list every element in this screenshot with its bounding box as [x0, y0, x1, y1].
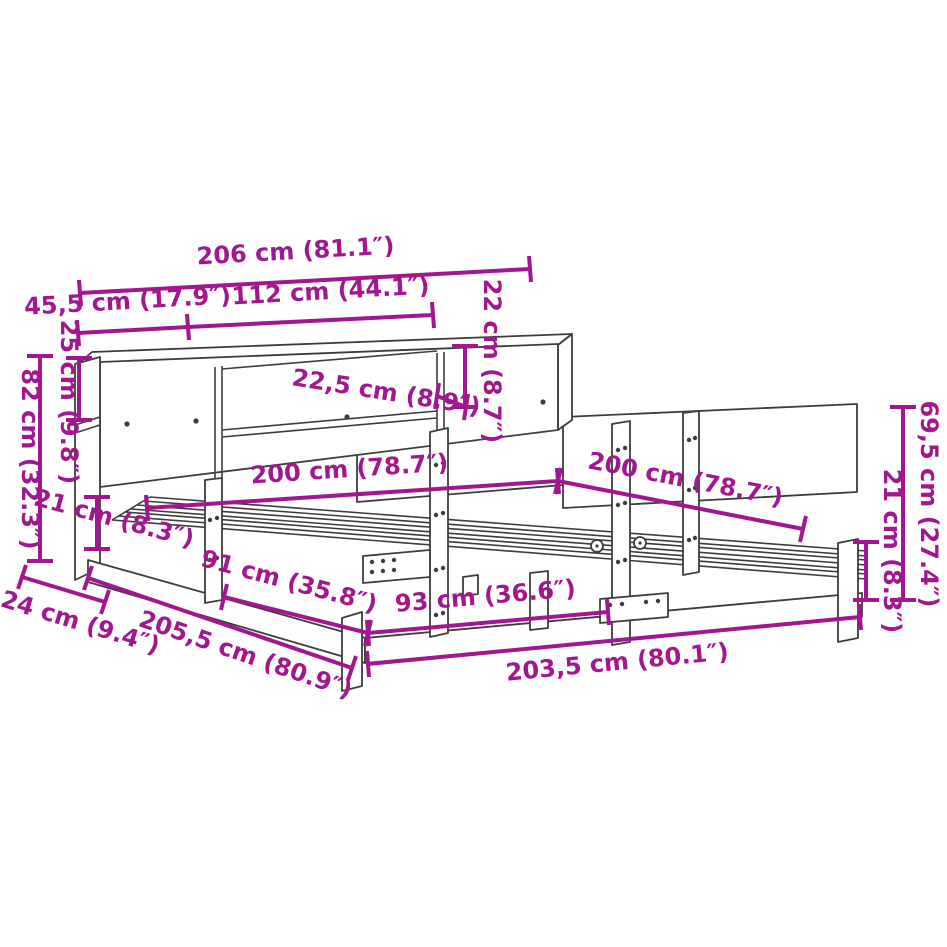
dimension-line — [188, 315, 433, 327]
rail-knob-center — [595, 544, 598, 547]
rail-bracket-left — [363, 550, 430, 583]
dimension-label: 21 cm (8.3″) — [31, 483, 197, 553]
dimension-left-frame-height: 21 cm (8.3″) — [31, 483, 197, 553]
dimension-label: 93 cm (36.6″) — [394, 574, 577, 618]
shelf-pin-hole — [344, 414, 349, 419]
dimension-label: 69,5 cm (27.4″) — [915, 400, 943, 607]
dimension-label: 25 cm (9.8″) — [55, 320, 83, 485]
shelf-pin-hole — [124, 421, 129, 426]
right-foot-leg — [838, 539, 858, 642]
rail-knob-center — [638, 541, 641, 544]
diagram-canvas: 206 cm (81.1″) 45,5 cm (17.9″) 112 cm (4… — [0, 0, 947, 947]
diagram-page: 206 cm (81.1″) 45,5 cm (17.9″) 112 cm (4… — [0, 0, 947, 947]
dimension-left-section-width: 45,5 cm (17.9″) — [23, 281, 231, 346]
shelf-pin-hole — [193, 418, 198, 423]
dimension-label: 22 cm (8.7″) — [478, 279, 506, 444]
dimension-label: 82 cm (32.3″) — [16, 368, 44, 549]
dimension-headboard-total-height: 82 cm (32.3″) — [16, 356, 53, 561]
bookcase-right-side — [558, 334, 572, 430]
head-post-left — [205, 478, 222, 603]
shelf-pin-hole — [540, 399, 545, 404]
dimension-label: 206 cm (81.1″) — [196, 232, 395, 271]
dimension-label: 45,5 cm (17.9″) — [23, 281, 231, 321]
dimension-line — [78, 327, 188, 333]
dimension-label: 112 cm (44.1″) — [231, 272, 430, 311]
